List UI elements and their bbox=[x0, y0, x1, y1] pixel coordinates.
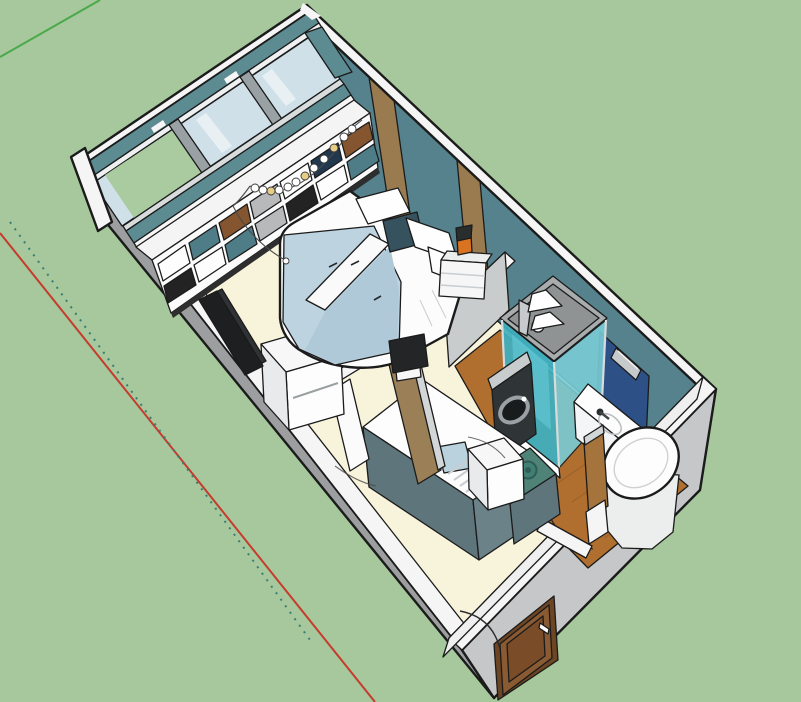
garland-bead bbox=[259, 186, 267, 194]
garland-bead bbox=[340, 133, 348, 141]
3d-viewport[interactable] bbox=[0, 0, 801, 702]
garland-bead bbox=[330, 144, 338, 152]
garland-bead bbox=[284, 183, 292, 191]
viewport-container bbox=[0, 0, 801, 702]
garland-bead bbox=[348, 125, 356, 133]
washer-latch bbox=[522, 397, 527, 402]
garland-bead bbox=[275, 186, 283, 194]
garland-bead bbox=[310, 164, 318, 172]
garland-bead bbox=[292, 178, 300, 186]
garland-bead bbox=[251, 184, 259, 192]
bed-foot-tv[interactable] bbox=[389, 334, 428, 373]
nightstand[interactable] bbox=[439, 260, 486, 299]
garland-bead bbox=[267, 187, 275, 195]
garland-bead bbox=[301, 172, 309, 180]
lamp-shade bbox=[456, 225, 472, 241]
garland-bead bbox=[320, 155, 328, 163]
garland-drop-bead bbox=[283, 258, 289, 264]
burner-center bbox=[525, 467, 531, 473]
